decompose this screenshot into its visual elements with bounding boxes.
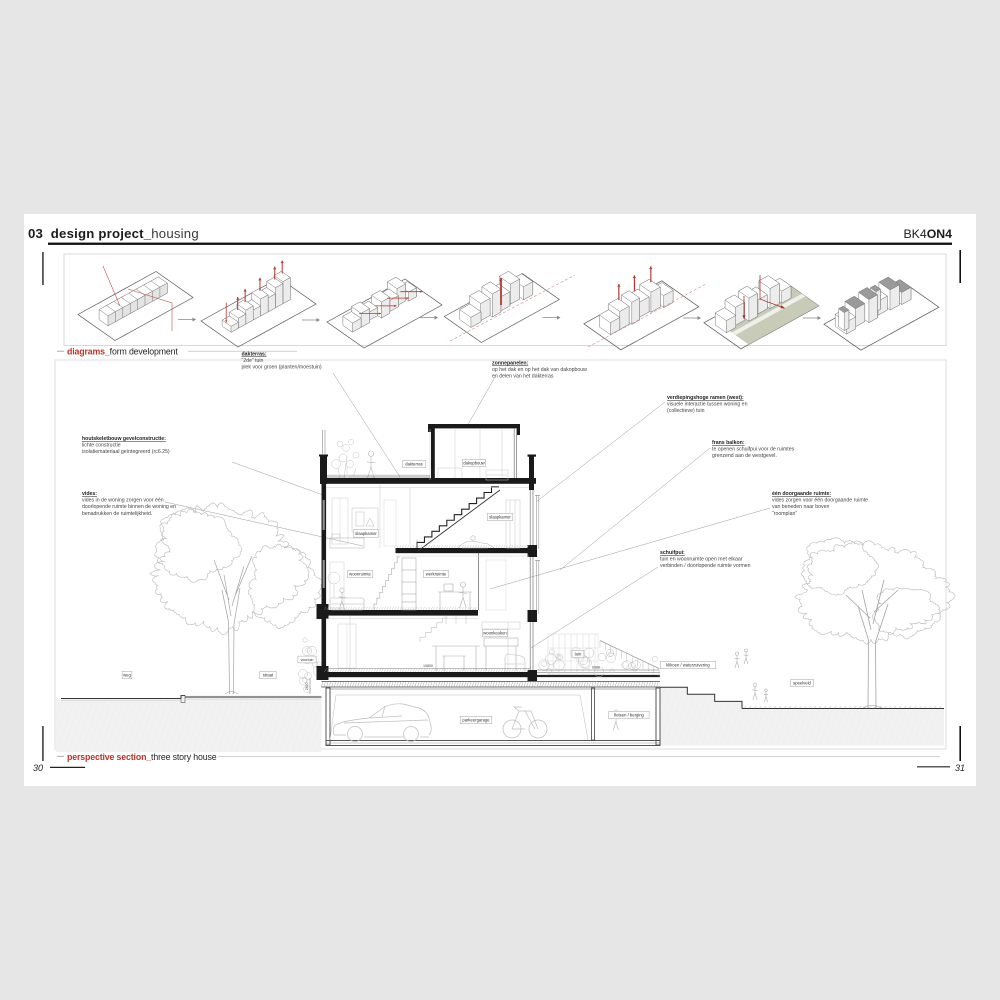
svg-text:werkruimte: werkruimte: [426, 572, 447, 577]
svg-text:dakopbouw: dakopbouw: [463, 461, 485, 466]
svg-text:fietsen / berging: fietsen / berging: [614, 713, 644, 718]
svg-text:BK4ON4: BK4ON4: [903, 227, 952, 241]
svg-text:parkeergarage: parkeergarage: [462, 718, 490, 723]
svg-text:slaapkamer: slaapkamer: [355, 531, 377, 536]
svg-text:woonruimte: woonruimte: [349, 572, 371, 577]
svg-text:dakterras: dakterras: [405, 462, 422, 467]
svg-text:straat: straat: [263, 673, 274, 678]
svg-text:woonkeuken: woonkeuken: [483, 631, 507, 636]
svg-text:perspective section_three stor: perspective section_three story house: [67, 752, 217, 762]
svg-text:diagrams_form development: diagrams_form development: [67, 347, 178, 357]
svg-text:weg: weg: [123, 673, 131, 678]
svg-text:30: 30: [33, 763, 43, 773]
svg-text:03 design project_housing: 03 design project_housing: [28, 226, 199, 241]
svg-text:10800: 10800: [423, 664, 433, 668]
svg-text:tuin: tuin: [575, 652, 582, 657]
svg-text:slaapkamer: slaapkamer: [489, 515, 511, 520]
svg-text:speelveld: speelveld: [793, 681, 811, 686]
svg-text:voortuin: voortuin: [301, 658, 314, 662]
svg-text:9000: 9000: [592, 666, 600, 670]
svg-text:2600: 2600: [305, 682, 309, 690]
svg-text:31: 31: [955, 763, 965, 773]
svg-text:klikoen / waterzuivering: klikoen / waterzuivering: [666, 663, 710, 668]
